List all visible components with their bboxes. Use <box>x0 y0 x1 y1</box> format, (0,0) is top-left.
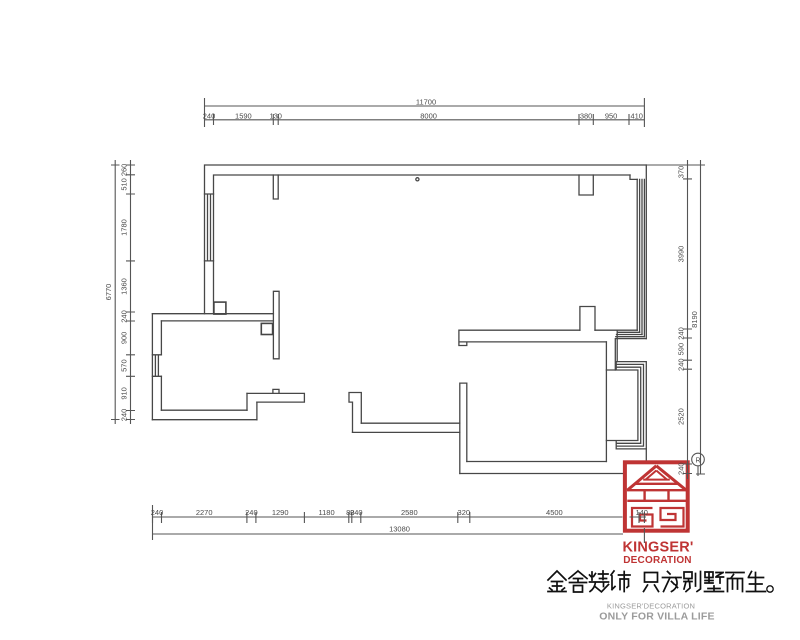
svg-text:DECORATION: DECORATION <box>623 555 691 566</box>
svg-text:240: 240 <box>677 327 686 340</box>
svg-text:570: 570 <box>120 359 129 372</box>
svg-text:240: 240 <box>120 409 129 422</box>
svg-text:240: 240 <box>120 310 129 323</box>
svg-text:510: 510 <box>120 178 129 191</box>
svg-text:240: 240 <box>677 462 686 475</box>
svg-text:140: 140 <box>635 508 648 517</box>
svg-text:320: 320 <box>458 508 471 517</box>
svg-text:260: 260 <box>120 164 129 177</box>
svg-text:2580: 2580 <box>401 508 418 517</box>
svg-text:8000: 8000 <box>420 111 437 120</box>
svg-text:1290: 1290 <box>272 508 289 517</box>
svg-text:2520: 2520 <box>677 408 686 425</box>
svg-text:240: 240 <box>350 508 363 517</box>
svg-text:410: 410 <box>630 111 643 120</box>
svg-text:900: 900 <box>120 332 129 345</box>
svg-text:8190: 8190 <box>690 311 699 328</box>
svg-text:950: 950 <box>605 111 618 120</box>
svg-text:240: 240 <box>151 508 164 517</box>
svg-text:13080: 13080 <box>389 525 410 534</box>
svg-text:1360: 1360 <box>120 278 129 295</box>
svg-text:ONLY FOR VILLA LIFE: ONLY FOR VILLA LIFE <box>599 611 714 623</box>
svg-text:370: 370 <box>677 166 686 179</box>
svg-text:4500: 4500 <box>546 508 563 517</box>
svg-text:590: 590 <box>677 343 686 356</box>
svg-text:240: 240 <box>203 111 216 120</box>
svg-text:240: 240 <box>677 358 686 371</box>
svg-text:2270: 2270 <box>196 508 213 517</box>
svg-text:R: R <box>695 458 700 465</box>
svg-text:380: 380 <box>580 111 593 120</box>
svg-text:130: 130 <box>269 111 282 120</box>
svg-text:1780: 1780 <box>120 219 129 236</box>
svg-text:1180: 1180 <box>319 508 335 517</box>
svg-text:6770: 6770 <box>104 284 113 301</box>
svg-text:KINGSER'DECORATION: KINGSER'DECORATION <box>607 602 695 611</box>
svg-text:KINGSER': KINGSER' <box>622 540 693 556</box>
svg-text:910: 910 <box>120 387 129 400</box>
svg-text:11700: 11700 <box>416 98 436 107</box>
svg-text:240: 240 <box>245 508 258 517</box>
svg-text:3990: 3990 <box>677 246 686 263</box>
svg-text:1590: 1590 <box>235 111 252 120</box>
